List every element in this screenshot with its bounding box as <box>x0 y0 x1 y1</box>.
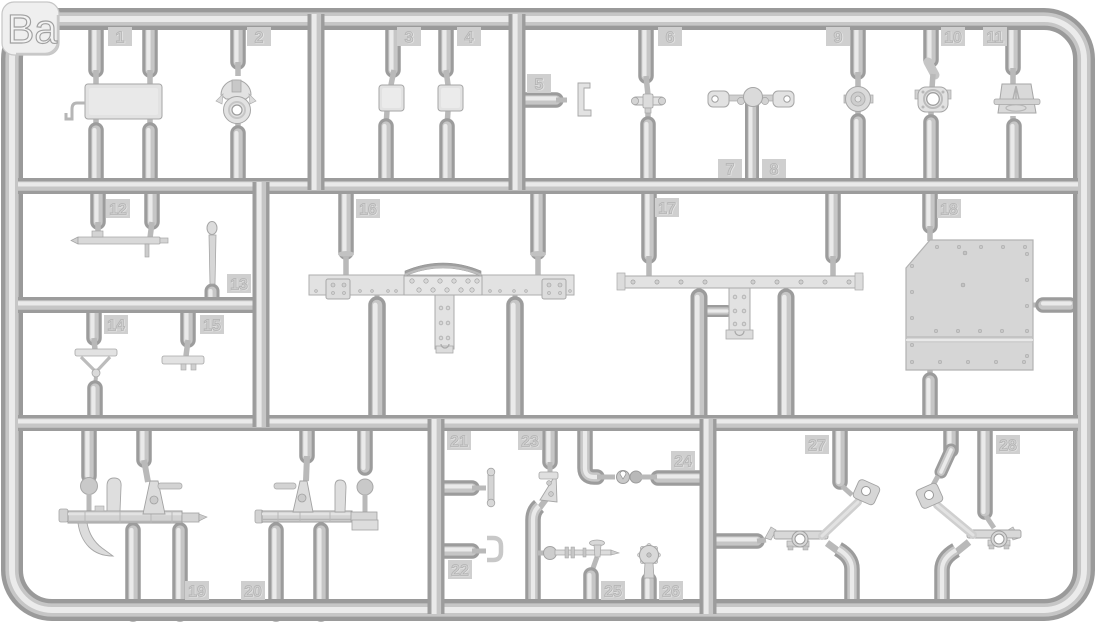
svg-text:10: 10 <box>944 29 962 46</box>
svg-text:15: 15 <box>203 317 221 334</box>
svg-text:6: 6 <box>666 29 675 46</box>
svg-text:25: 25 <box>604 583 622 600</box>
svg-text:28: 28 <box>999 437 1017 454</box>
svg-text:22: 22 <box>451 562 469 579</box>
svg-text:17: 17 <box>658 200 676 217</box>
svg-text:24: 24 <box>674 453 692 470</box>
svg-text:23: 23 <box>521 433 539 450</box>
svg-text:3: 3 <box>405 29 414 46</box>
svg-text:20: 20 <box>244 583 262 600</box>
svg-text:5: 5 <box>535 76 544 93</box>
svg-text:1: 1 <box>116 29 125 46</box>
svg-text:12: 12 <box>109 201 127 218</box>
svg-text:13: 13 <box>230 276 248 293</box>
svg-text:9: 9 <box>834 29 843 46</box>
svg-text:18: 18 <box>940 201 958 218</box>
svg-text:2: 2 <box>255 29 264 46</box>
svg-text:4: 4 <box>465 29 474 46</box>
svg-text:19: 19 <box>188 583 206 600</box>
svg-text:11: 11 <box>987 29 1004 46</box>
svg-text:14: 14 <box>107 317 125 334</box>
svg-text:Ba: Ba <box>7 6 57 52</box>
svg-text:16: 16 <box>359 201 377 218</box>
svg-text:27: 27 <box>808 437 826 454</box>
svg-text:26: 26 <box>662 583 680 600</box>
svg-text:7: 7 <box>726 161 735 178</box>
svg-text:8: 8 <box>770 161 779 178</box>
svg-text:21: 21 <box>450 433 468 450</box>
